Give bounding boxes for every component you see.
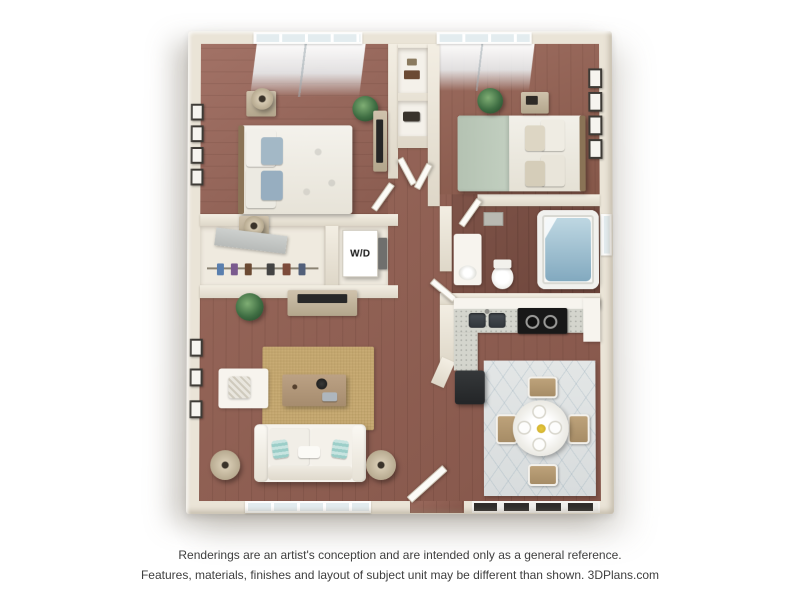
nightstand-2-items (526, 96, 538, 105)
picture-frame (588, 92, 602, 112)
bed-2-accent-pillow (525, 161, 545, 187)
kitchen-counter-arm (454, 333, 478, 371)
place-setting (534, 406, 545, 417)
bed-1-pillow-blue-2 (261, 171, 283, 201)
place-setting (534, 439, 545, 450)
wall-bathroom-left (440, 206, 452, 271)
disclaimer: Renderings are an artist's conception an… (0, 545, 800, 585)
sofa-back (268, 466, 352, 480)
kitchen-sink-basin (489, 313, 506, 328)
bed-1-pillow-blue (261, 137, 283, 165)
kitchen-right-cabinet (583, 298, 600, 342)
picture-frame (189, 400, 202, 418)
picture-frame (191, 125, 204, 142)
stove-burner (525, 315, 539, 329)
hanging-clothes (245, 263, 252, 275)
washer-dryer-unit: W/D (342, 230, 378, 277)
closet-shelf-box (407, 59, 417, 66)
bathtub (537, 210, 599, 289)
stove-burner (543, 315, 557, 329)
tv (297, 294, 347, 303)
place-setting (519, 422, 530, 433)
decor-tray (322, 392, 337, 401)
hanging-clothes (267, 263, 275, 275)
sofa-pillow-teal (271, 439, 289, 459)
sofa-arm-right (352, 424, 366, 482)
bedroom2-window (437, 32, 532, 44)
toilet-tank (493, 259, 511, 268)
wall-bedroom1-right (388, 44, 398, 179)
dining-chair-bottom (528, 464, 558, 486)
bedroom1-window (253, 32, 362, 44)
tv-bedroom1 (376, 119, 383, 162)
toilet (492, 265, 514, 289)
picture-frame (191, 104, 204, 121)
dining-windows (472, 501, 600, 513)
closet-shelf-items (404, 70, 420, 79)
place-setting (550, 422, 561, 433)
bathtub-water (545, 218, 591, 281)
hanging-clothes (283, 263, 291, 275)
potted-plant-living (236, 293, 264, 321)
hanging-clothes (299, 263, 306, 275)
picture-frame (191, 147, 204, 164)
potted-plant-bedroom2 (477, 88, 503, 114)
picture-frame (589, 139, 603, 159)
picture-frame (190, 339, 203, 357)
refrigerator (455, 371, 485, 405)
hanging-clothes (231, 263, 238, 275)
kitchen-faucet (485, 309, 490, 314)
kitchen-sink-basin (469, 313, 486, 328)
ceiling-vent (483, 212, 503, 226)
dining-chair-right (568, 414, 590, 444)
picture-frame (190, 169, 203, 186)
decor-item (292, 384, 297, 389)
sofa-pillow-white (298, 446, 320, 458)
armchair-pillow (228, 376, 250, 398)
bed-2-headboard (579, 116, 585, 192)
bathroom-window (601, 214, 612, 255)
bed-2-accent-pillow (525, 125, 545, 151)
vanity-sink (459, 265, 477, 280)
dining-chair-top (528, 376, 558, 398)
bed-2-sage-blanket (458, 116, 510, 192)
picture-frame (190, 369, 203, 387)
sofa-pillow-teal (331, 439, 349, 459)
sofa-arm-left (254, 424, 268, 482)
bag-on-shelf (403, 112, 420, 122)
coffee-table (282, 374, 346, 406)
picture-frame (588, 116, 602, 136)
bed-1-headboard (238, 125, 244, 214)
laundry-side-unit (378, 238, 387, 270)
floor-plan: W/D (186, 31, 614, 514)
floor-lamp-left (210, 450, 240, 480)
wall-bedroom2-bottom (477, 194, 599, 206)
bedroom2-window-light (434, 44, 535, 91)
living-room-window (245, 501, 371, 513)
picture-frame (588, 68, 602, 88)
wall-closet-divider (325, 226, 338, 285)
decor-bowl (316, 378, 327, 389)
hanging-clothes (217, 263, 224, 275)
disclaimer-line-2: Features, materials, finishes and layout… (0, 565, 800, 585)
entry-threshold (410, 501, 464, 513)
wall-kitchen-left (440, 305, 454, 365)
wall-bedroom1-bottom (200, 214, 398, 226)
page: W/D (0, 0, 800, 600)
table-lamp-1a (251, 88, 273, 110)
disclaimer-line-1: Renderings are an artist's conception an… (0, 545, 800, 565)
floor-lamp-right (366, 450, 396, 480)
table-centerpiece (537, 424, 546, 433)
wall-bedroom2-left (428, 44, 440, 206)
